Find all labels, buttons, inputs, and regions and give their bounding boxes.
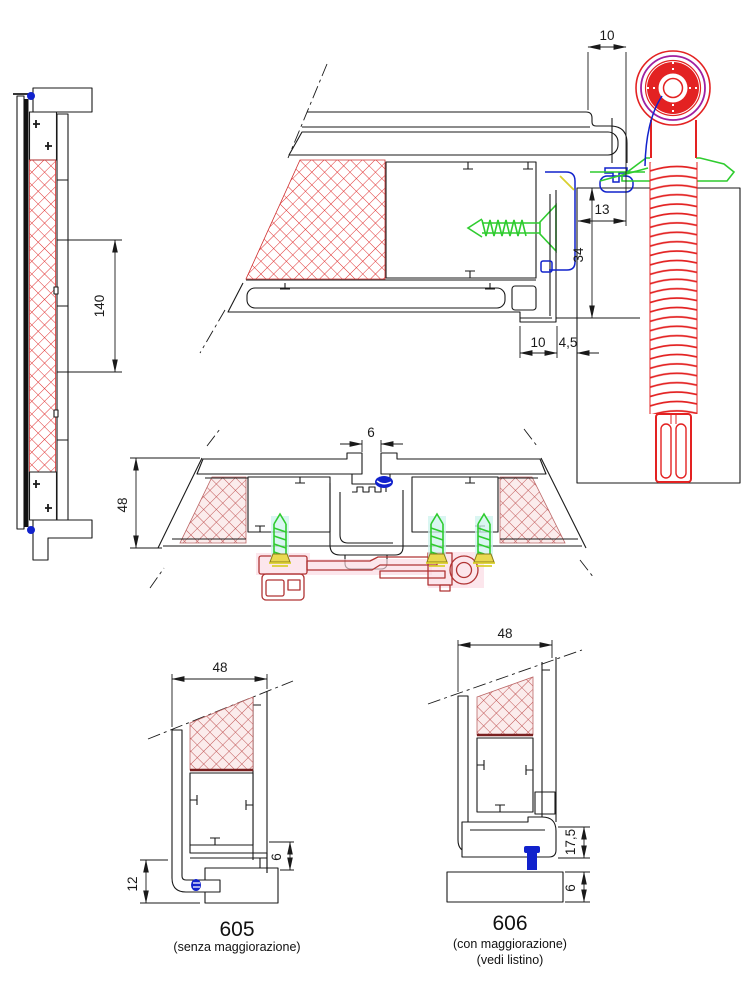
view-detail-605: 48 12 6 605 (senza maggiorazione) [125, 660, 301, 954]
detail-caption-606-line2: (vedi listino) [477, 953, 544, 967]
dim-text-6: 6 [269, 853, 284, 861]
dim-17-5: 17,5 [558, 827, 590, 858]
dim-13: 13 [578, 202, 626, 221]
anchor-head [636, 51, 710, 125]
insulation-hatch [30, 160, 56, 472]
profile-sections-drawing: 140 [0, 0, 747, 981]
gasket [191, 879, 201, 891]
insulation-hatch [246, 160, 385, 279]
view-detail-606: 48 17,5 6 606 (con maggiorazione) (vedi … [428, 626, 590, 967]
gasket-dot-bottom [27, 526, 35, 534]
membrane-seal [541, 172, 575, 272]
screw-middle [426, 514, 448, 566]
cover-profile [13, 94, 30, 529]
gasket-dot-top [27, 92, 35, 100]
dim-10-top: 10 [588, 28, 626, 226]
main-profile [190, 691, 267, 873]
dim-text-34: 34 [571, 247, 586, 263]
dim-6: 6 [269, 842, 294, 870]
joint-profile [330, 474, 403, 569]
dim-text-6-gap: 6 [367, 425, 375, 440]
dim-text-48: 48 [497, 626, 512, 641]
view-mullion-section: 6 48 [115, 425, 594, 600]
dim-text-17-5: 17,5 [563, 829, 578, 855]
screw-right [473, 514, 495, 566]
dim-48: 48 [458, 626, 552, 692]
anchor-thread [650, 162, 697, 414]
view-side-section: 140 [13, 88, 122, 560]
screw-head [540, 205, 556, 251]
dim-text-48: 48 [115, 497, 130, 512]
hardware-assembly [256, 552, 484, 600]
dim-text-12: 12 [125, 876, 140, 891]
screw-left [269, 514, 291, 566]
dim-text-10-top: 10 [599, 28, 614, 43]
dim-text-140: 140 [92, 295, 107, 318]
dim-text-6: 6 [563, 884, 578, 892]
frame-profile [30, 112, 69, 520]
detail-code-605: 605 [219, 918, 254, 941]
break-line-bottom [200, 310, 225, 353]
dim-text-13: 13 [594, 202, 609, 217]
dim-text-10-foot: 10 [530, 335, 545, 350]
riser-foot [462, 817, 556, 857]
detail-caption-605: (senza maggiorazione) [173, 940, 300, 954]
dim-10-foot: 10 [520, 326, 557, 358]
insulation-hatch-left [180, 477, 246, 543]
view-head-section: 10 13 34 10 4,5 [200, 28, 740, 483]
panel-profile [289, 112, 627, 163]
dim-4-5: 4,5 [559, 335, 599, 353]
dim-140: 140 [68, 240, 122, 372]
detail-caption-606-line1: (con maggiorazione) [453, 937, 567, 951]
anchor-sleeve-tip [656, 414, 691, 482]
detail-code-606: 606 [492, 912, 527, 935]
dim-text-4-5: 4,5 [559, 335, 578, 350]
anchor-bolt [590, 51, 734, 482]
insulation-hatch [477, 677, 533, 735]
technical-drawing-page: 140 [0, 0, 747, 981]
wall-hatch [447, 872, 563, 902]
dim-text-48: 48 [212, 660, 227, 675]
insulation-hatch [190, 697, 253, 770]
wall-hatch-top [33, 88, 92, 112]
wall-hatch-bottom [33, 520, 92, 560]
anchor-plug [524, 846, 540, 870]
dim-6: 6 [563, 872, 590, 902]
dim-6-gap: 6 [340, 425, 403, 452]
